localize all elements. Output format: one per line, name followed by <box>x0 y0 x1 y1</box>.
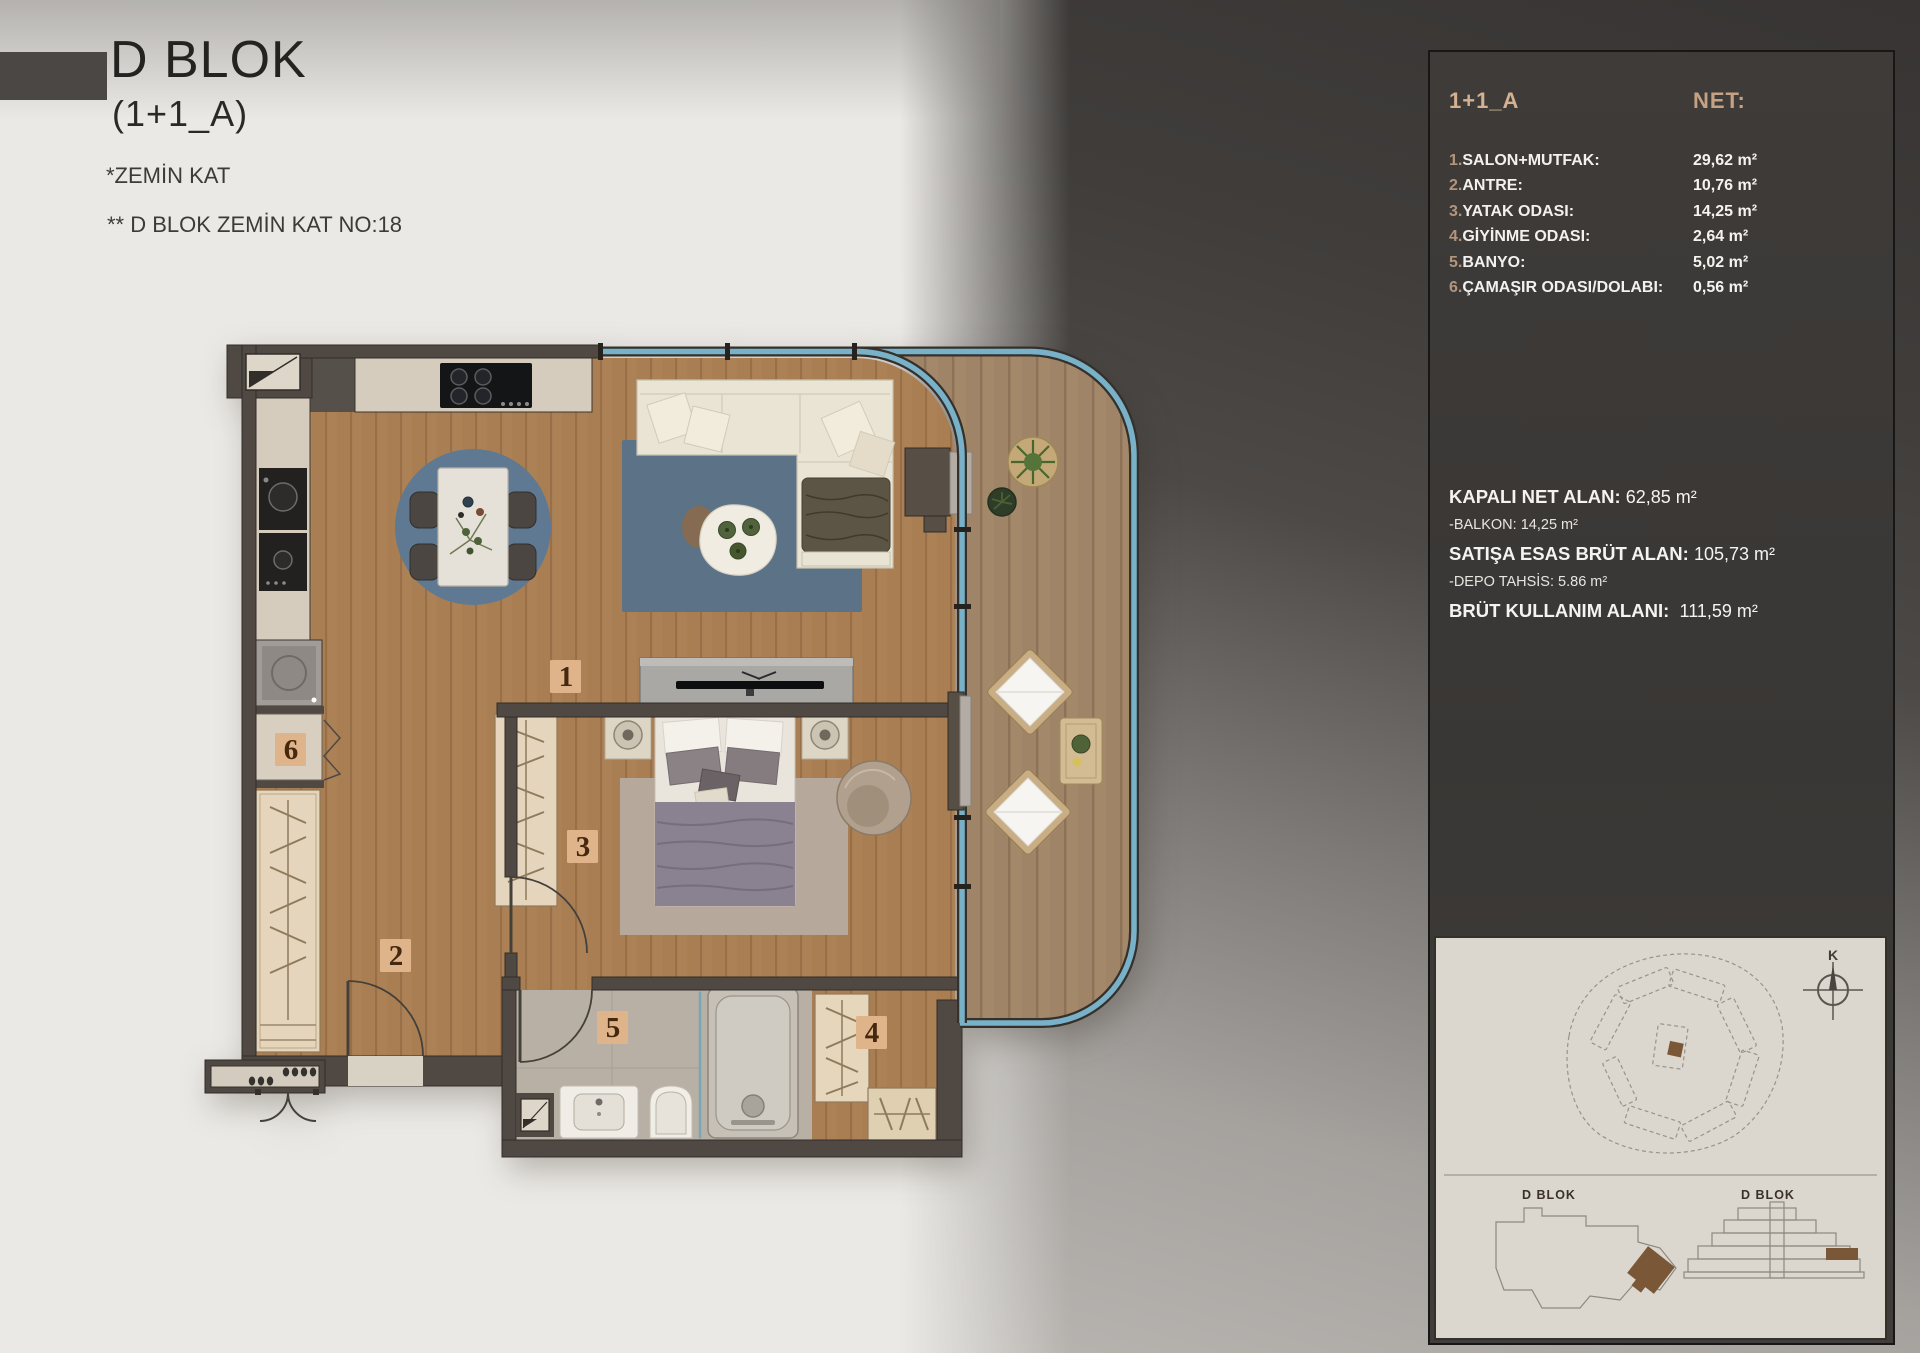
area-summary: KAPALI NET ALAN: 62,85 m² -BALKON: 14,25… <box>1449 482 1883 626</box>
room-label-1: 1 <box>550 660 581 693</box>
svg-text:D BLOK: D BLOK <box>1522 1188 1576 1202</box>
summary-row: KAPALI NET ALAN: 62,85 m² <box>1449 482 1883 512</box>
hall-wardrobe <box>256 790 320 1052</box>
potted-plant-icon <box>1008 437 1058 487</box>
floor-plan: 1 2 3 4 5 6 <box>0 0 1200 1250</box>
masterplan-sketch <box>1567 954 1783 1153</box>
room-area-row: 2.ANTRE: 10,76 m² <box>1449 173 1883 198</box>
kitchen-sink-icon <box>259 468 307 530</box>
svg-text:D BLOK: D BLOK <box>1741 1188 1795 1202</box>
bathtub-icon <box>708 988 798 1138</box>
tv-unit <box>640 658 853 703</box>
unit-highlight <box>1826 1248 1858 1260</box>
svg-text:4: 4 <box>865 1017 880 1049</box>
summary-row: SATIŞA ESAS BRÜT ALAN: 105,73 m² <box>1449 539 1883 569</box>
room-label-5: 5 <box>597 1011 628 1044</box>
svg-text:5: 5 <box>606 1012 621 1044</box>
site-plan-box: K <box>1434 936 1887 1340</box>
shaft-bath <box>516 1093 554 1137</box>
panel-net-header: NET: <box>1693 88 1746 114</box>
small-plant-icon <box>988 488 1016 516</box>
block-elevation-sketch: D BLOK <box>1684 1188 1864 1278</box>
stove-icon <box>440 363 532 408</box>
svg-text:6: 6 <box>284 734 299 766</box>
oven-icon <box>259 533 307 591</box>
sink-icon <box>560 1086 638 1138</box>
summary-row: -DEPO TAHSİS: 5.86 m² <box>1449 569 1883 596</box>
washer-icon <box>256 640 322 706</box>
toilet-icon <box>650 1086 692 1138</box>
armchair <box>837 761 911 835</box>
svg-text:2: 2 <box>389 940 404 972</box>
entrance-porch <box>205 1060 325 1121</box>
entry-door-arc <box>260 1093 316 1121</box>
room-area-list: 1.SALON+MUTFAK: 29,62 m² 2.ANTRE: 10,76 … <box>1449 148 1883 300</box>
room-area-row: 1.SALON+MUTFAK: 29,62 m² <box>1449 148 1883 173</box>
block-plan-sketch: D BLOK <box>1496 1188 1676 1308</box>
svg-text:3: 3 <box>576 831 591 863</box>
room-area-row: 4.GİYİNME ODASI: 2,64 m² <box>1449 224 1883 249</box>
page: D BLOK (1+1_A) *ZEMİN KAT ** D BLOK ZEMİ… <box>0 0 1920 1353</box>
info-panel: 1+1_A NET: 1.SALON+MUTFAK: 29,62 m² 2.AN… <box>1428 50 1895 1345</box>
shaft-kitchen <box>246 354 300 390</box>
summary-row: -BALKON: 14,25 m² <box>1449 512 1883 539</box>
room-area-row: 5.BANYO: 5,02 m² <box>1449 250 1883 275</box>
compass-icon: K <box>1803 947 1863 1020</box>
room-label-4: 4 <box>856 1016 887 1049</box>
room-label-2: 2 <box>380 939 411 972</box>
room-area-row: 6.ÇAMAŞIR ODASI/DOLABI: 0,56 m² <box>1449 275 1883 300</box>
site-plan-sketch: K <box>1436 938 1885 1338</box>
room-label-3: 3 <box>567 830 598 863</box>
svg-text:1: 1 <box>559 661 574 693</box>
balcony-table <box>1060 718 1102 784</box>
summary-row: BRÜT KULLANIM ALANI: 111,59 m² <box>1449 596 1883 626</box>
bedroom-wardrobe <box>495 714 557 906</box>
site-highlight <box>1667 1041 1684 1058</box>
room-area-row: 3.YATAK ODASI: 14,25 m² <box>1449 199 1883 224</box>
panel-unit-label: 1+1_A <box>1449 88 1519 114</box>
room-label-6: 6 <box>275 733 306 766</box>
svg-text:K: K <box>1828 947 1838 963</box>
